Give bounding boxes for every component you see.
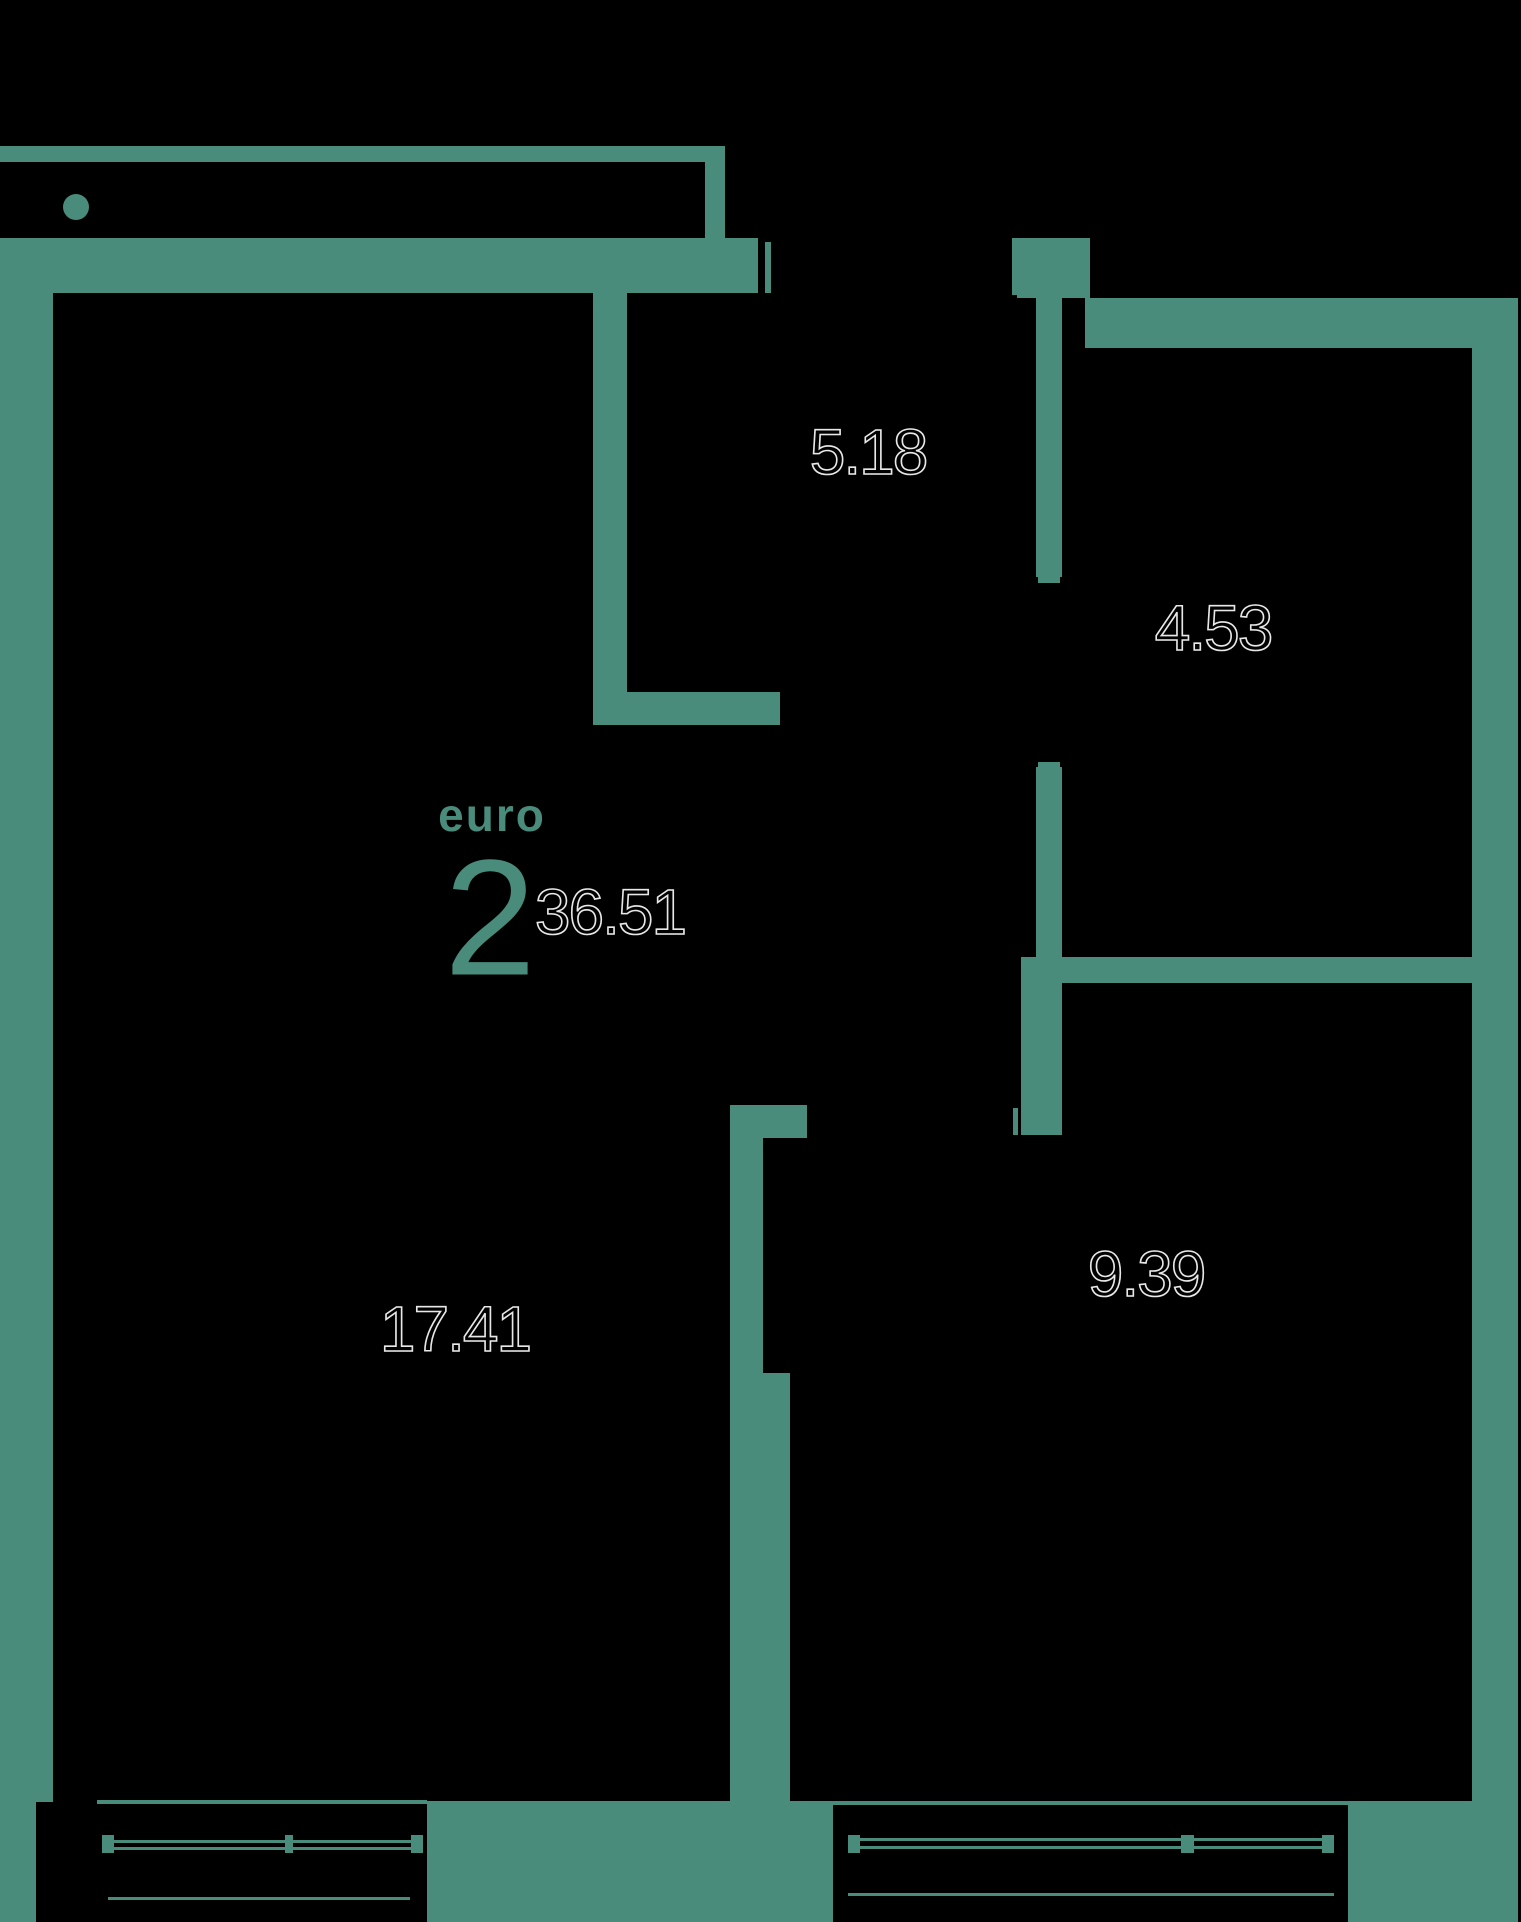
wall-bottom-pier-right bbox=[1348, 1801, 1518, 1922]
bedroom-window-end-cap-left bbox=[848, 1835, 860, 1853]
bedroom-window-end-cap-right bbox=[1322, 1835, 1334, 1853]
room-area-label-living: 17.41 bbox=[380, 1292, 530, 1366]
wall-exterior-top-mid bbox=[1017, 238, 1090, 298]
wall-exterior-top-right bbox=[1085, 298, 1480, 348]
bedroom-window-inner-sill-line bbox=[833, 1801, 1348, 1805]
unit-rooms-count: 2 bbox=[444, 836, 536, 1001]
wall-bathroom-left-upper bbox=[1036, 298, 1062, 577]
balcony-wall-top bbox=[0, 146, 725, 162]
bedroom-window-glass-line-upper bbox=[848, 1838, 1334, 1841]
wall-living-right-lower bbox=[730, 1373, 790, 1805]
living-window-inner-sill-line bbox=[97, 1800, 427, 1804]
bedroom-door-jamb bbox=[1013, 1108, 1018, 1135]
wall-hallway-bottom-stub bbox=[593, 692, 780, 725]
wall-exterior-left bbox=[0, 238, 53, 1802]
living-window-mid-divider bbox=[285, 1835, 293, 1853]
wall-bedroom-left bbox=[1021, 957, 1062, 1135]
room-area-label-bedroom: 9.39 bbox=[1088, 1237, 1205, 1311]
living-window-end-cap-right bbox=[411, 1835, 423, 1853]
wall-bathroom-bottom bbox=[1062, 957, 1472, 983]
wall-exterior-left-bottom bbox=[0, 1802, 36, 1922]
room-area-label-bathroom: 4.53 bbox=[1155, 591, 1272, 665]
unit-total-area: 36.51 bbox=[535, 875, 685, 949]
balcony-wall-right bbox=[705, 146, 725, 238]
bathroom-door-jamb-top bbox=[1038, 577, 1060, 583]
floor-plan-canvas: euro 2 36.51 5.18 4.53 9.39 17.41 bbox=[0, 0, 1521, 1922]
wall-living-right-upper bbox=[730, 1105, 763, 1373]
wall-bathroom-left-lower bbox=[1036, 767, 1062, 957]
living-window-glass-line-lower bbox=[102, 1847, 413, 1850]
living-window-outer-sill-line bbox=[108, 1897, 410, 1900]
living-window-end-cap-left bbox=[102, 1835, 114, 1853]
room-area-label-hallway: 5.18 bbox=[810, 415, 927, 489]
wall-exterior-right bbox=[1472, 298, 1518, 1922]
living-window-glass-line-upper bbox=[102, 1840, 413, 1843]
entrance-door-jamb-left bbox=[765, 242, 771, 293]
wall-hallway-left bbox=[593, 293, 627, 725]
bedroom-window-mid-divider bbox=[1181, 1835, 1194, 1853]
bedroom-window-outer-sill-line bbox=[848, 1893, 1334, 1896]
bedroom-window-glass-line-lower bbox=[848, 1846, 1334, 1849]
wall-exterior-top-left bbox=[0, 238, 758, 293]
wall-bottom-pier-center bbox=[427, 1801, 833, 1922]
balcony-column-dot bbox=[63, 194, 89, 220]
